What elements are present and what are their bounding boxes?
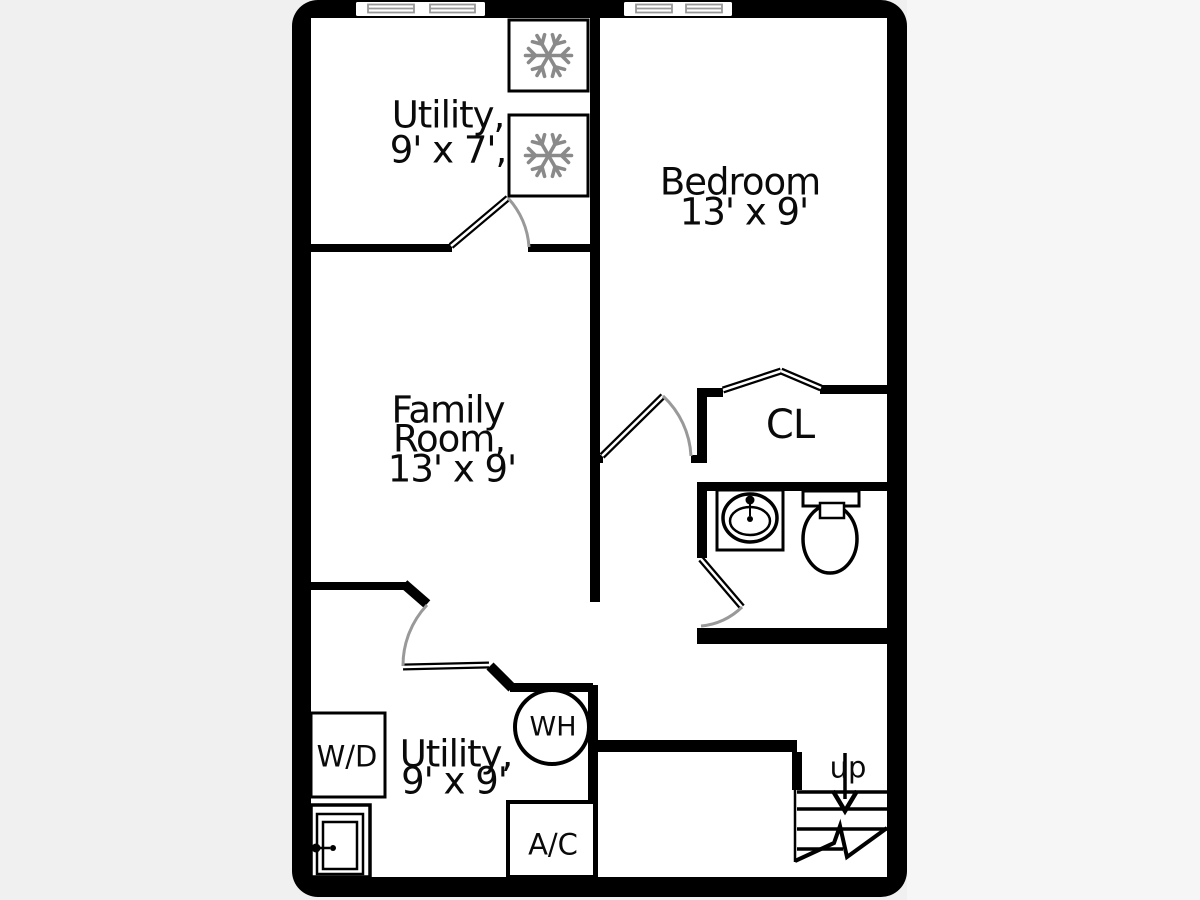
- room-label-closet: CL: [766, 405, 814, 445]
- water-heater-label: WH: [530, 714, 577, 741]
- page-background-right: [907, 0, 1200, 900]
- freezer-icon-1: [509, 20, 588, 91]
- stairs-up-label: up: [830, 754, 867, 783]
- washer-dryer-label: W/D: [317, 743, 378, 772]
- toilet-icon: [803, 491, 859, 573]
- floor-plan-svg: [0, 0, 1200, 900]
- sink-icon: [717, 490, 783, 550]
- window-icon-bedroom: [624, 2, 732, 16]
- room-label-family-dims: 13' x 9': [388, 451, 516, 488]
- room-label-bedroom-dims: 13' x 9': [680, 194, 808, 231]
- window-icon-utility: [356, 2, 485, 16]
- room-label-utility-bottom-dims: 9' x 9': [401, 763, 507, 800]
- room-label-utility-top-dims: 9' x 7',: [390, 132, 507, 169]
- air-conditioner-label: A/C: [528, 831, 578, 860]
- floor-plan: Utility, 9' x 7', Bedroom 13' x 9' Famil…: [0, 0, 1200, 900]
- laundry-tub-icon: [311, 805, 370, 877]
- freezer-icon-2: [509, 115, 588, 196]
